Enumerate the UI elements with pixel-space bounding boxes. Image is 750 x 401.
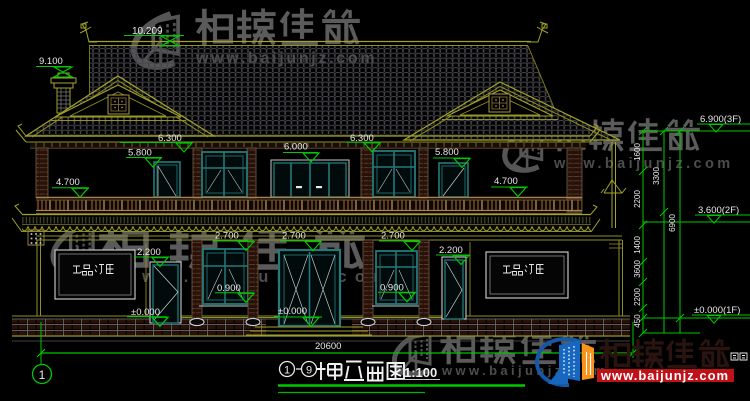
svg-text:5.800: 5.800 bbox=[128, 148, 152, 159]
svg-text:5.800: 5.800 bbox=[435, 147, 459, 158]
svg-text:450: 450 bbox=[633, 314, 642, 328]
svg-text:9.100: 9.100 bbox=[39, 56, 63, 67]
svg-text:2200: 2200 bbox=[633, 288, 642, 306]
svg-text:±0.000(1F): ±0.000(1F) bbox=[694, 305, 740, 316]
svg-text:9: 9 bbox=[306, 365, 312, 377]
svg-text:2.200: 2.200 bbox=[137, 247, 161, 258]
svg-text:1400: 1400 bbox=[633, 236, 642, 254]
svg-text:3600: 3600 bbox=[633, 260, 642, 278]
svg-text:1600: 1600 bbox=[633, 143, 642, 161]
svg-text:2.700: 2.700 bbox=[215, 231, 239, 242]
svg-text:4.700: 4.700 bbox=[56, 177, 80, 188]
svg-text:3.600(2F): 3.600(2F) bbox=[698, 205, 739, 216]
svg-text:6900: 6900 bbox=[668, 214, 677, 232]
svg-text:20600: 20600 bbox=[315, 341, 341, 352]
svg-text:4.700: 4.700 bbox=[494, 176, 518, 187]
svg-text:2.700: 2.700 bbox=[282, 231, 306, 242]
svg-text:1: 1 bbox=[284, 365, 290, 377]
svg-text:6.000: 6.000 bbox=[284, 142, 308, 153]
svg-text:www.baijunjz.com: www.baijunjz.com bbox=[600, 368, 729, 383]
svg-text:1:100: 1:100 bbox=[404, 365, 437, 380]
svg-text:3300: 3300 bbox=[652, 167, 661, 185]
svg-text:6.900(3F): 6.900(3F) bbox=[700, 114, 741, 125]
svg-text:±0.000: ±0.000 bbox=[278, 306, 307, 317]
svg-text:1: 1 bbox=[39, 368, 46, 382]
svg-text:2.200: 2.200 bbox=[439, 245, 463, 256]
svg-text:2.700: 2.700 bbox=[381, 231, 405, 242]
svg-text:2200: 2200 bbox=[633, 190, 642, 208]
